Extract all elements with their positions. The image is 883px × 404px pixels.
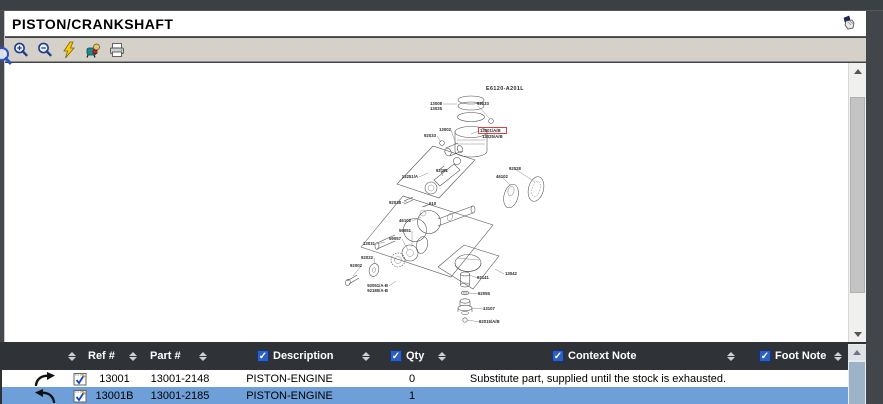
diagram-part-label[interactable]: 46102 [399,218,412,223]
hotspot-tool-icon[interactable] [84,41,102,59]
magnifier-cursor-icon [0,45,14,67]
print-icon[interactable] [108,41,126,59]
diagram-part-label[interactable]: 92141 [477,275,490,280]
column-header-foot: ✓ Foot Note [759,342,826,370]
diagram-part-label[interactable]: 92055 [478,291,491,296]
scroll-down-button[interactable] [849,326,866,342]
diagram-part-label[interactable]: 13002 [439,127,452,132]
column-header-part: Part # [150,342,181,370]
parts-catalog-window: PISTON/CRANKSHAFT [0,0,883,404]
diagram-part-label[interactable]: 92038 [389,200,402,205]
column-header-ref: Ref # [88,342,115,370]
ref-cell: 13001B [82,387,147,404]
description-cell: PISTON-ENGINE [227,387,352,404]
scroll-up-button[interactable] [849,63,866,79]
triangle-up-icon [853,350,861,355]
flash-icon[interactable] [60,41,78,59]
page-title: PISTON/CRANKSHAFT [5,16,173,32]
sort-control[interactable] [834,342,842,370]
diagram-part-label[interactable]: 13031 [363,241,376,246]
diagram-part-label[interactable]: 92002 [350,263,363,268]
context-note-cell [452,387,744,404]
diagram-part-label[interactable]: 92180/A-B [367,288,388,293]
foot-note-cell [750,387,840,404]
diagram-part-label[interactable]: 92015/A/B [479,319,500,324]
diagram-part-label[interactable]: 92033 [424,133,437,138]
table-scrollbar[interactable] [848,344,866,404]
qty-checkbox[interactable]: ✓ [390,350,402,362]
diagram-part-label[interactable]: 13251/A [402,174,418,179]
window-top-bar [0,0,883,11]
diagram-panel[interactable]: E6120-A201L [5,63,866,342]
qty-cell: 0 [387,370,437,387]
diagram-part-label[interactable]: 13107 [483,306,496,311]
exploded-parts-diagram[interactable]: E6120-A201L [5,63,850,342]
diagram-part-label[interactable]: 92151 [436,168,449,173]
diagram-scrollbar[interactable] [848,63,866,342]
diagram-part-label[interactable]: 46102 [496,174,509,179]
title-bar: PISTON/CRANKSHAFT [5,11,866,37]
table-header-row: Ref # Part # ✓ Description ✓ Qty ✓ Conte… [0,342,866,370]
ref-cell: 13001 [82,370,147,387]
triangle-down-icon [854,332,862,337]
toolbar [5,38,866,62]
scrollbar-thumb[interactable] [850,97,865,293]
parts-table: Ref # Part # ✓ Description ✓ Qty ✓ Conte… [0,342,866,404]
description-checkbox[interactable]: ✓ [257,350,269,362]
diagram-part-label[interactable]: 13001/A/B [480,128,501,133]
hand-icon[interactable] [836,12,860,36]
column-header-description: ✓ Description [257,342,334,370]
diagram-part-label[interactable]: 13025 [430,106,443,111]
diagram-code-label: E6120-A201L [486,86,524,92]
sort-control[interactable] [199,342,207,370]
qty-cell: 1 [387,387,437,404]
part-cell: 13001-2185 [145,387,215,404]
zoom-in-icon[interactable] [12,41,30,59]
triangle-up-icon [854,69,862,74]
sort-control[interactable] [438,342,446,370]
diagram-part-label[interactable]: 13042 [505,271,518,276]
undo-arrow-icon[interactable] [28,387,62,404]
sort-control[interactable] [68,342,76,370]
sort-control[interactable] [362,342,370,370]
description-cell: PISTON-ENGINE [227,370,352,387]
part-cell: 13001-2148 [145,370,215,387]
diagram-part-label[interactable]: 92022 [361,255,374,260]
diagram-part-label[interactable]: 92028 [509,166,522,171]
table-scroll-up-button[interactable] [848,345,866,360]
context-note-cell: Substitute part, supplied until the stoc… [452,370,744,387]
diagram-part-label[interactable]: 92033 [477,101,490,106]
diagram-part-label[interactable]: 510 [429,201,437,206]
redo-arrow-icon[interactable] [28,370,62,387]
sort-control[interactable] [129,342,137,370]
zoom-out-icon[interactable] [36,41,54,59]
foot-note-cell [750,370,840,387]
foot-note-checkbox[interactable]: ✓ [759,350,771,362]
column-header-qty: ✓ Qty [390,342,424,370]
diagram-part-label[interactable]: 59057 [389,236,402,241]
table-scrollbar-thumb[interactable] [849,362,865,404]
window-right-edge [866,11,883,404]
context-note-checkbox[interactable]: ✓ [552,350,564,362]
diagram-part-label[interactable]: 13025/A/B [482,134,503,139]
diagram-part-label[interactable]: 59051 [399,228,412,233]
sort-control[interactable] [727,342,735,370]
table-row[interactable]: 13001 13001-2148 PISTON-ENGINE 0 Substit… [0,370,866,387]
table-row-selected[interactable]: 13001B 13001-2185 PISTON-ENGINE 1 [0,387,866,404]
column-header-context: ✓ Context Note [552,342,636,370]
